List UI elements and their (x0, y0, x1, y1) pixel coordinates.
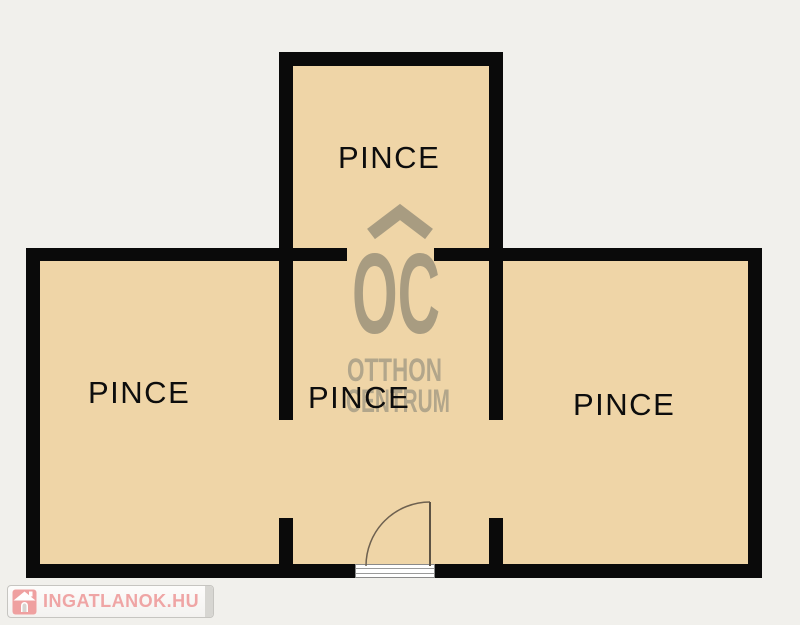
wall-mid-west-segment (26, 248, 347, 261)
wall-top-room-north (279, 52, 503, 66)
wall-outer-west (26, 248, 40, 578)
portal-logo: INGATLANOK.HU (7, 585, 214, 618)
portal-logo-text: INGATLANOK.HU (43, 591, 199, 612)
wall-interior-west-upper (279, 261, 293, 420)
portal-logo-edge-tab (205, 586, 213, 617)
room-label-right: PINCE (573, 389, 675, 420)
door-symbol (350, 495, 450, 580)
watermark-monogram: OC (352, 231, 440, 358)
wall-bottom-east-segment (435, 564, 762, 578)
wall-interior-west-stub (279, 518, 293, 564)
wall-mid-east-segment (434, 248, 762, 261)
wall-interior-east-upper (489, 261, 503, 420)
room-label-top: PINCE (338, 142, 440, 173)
wall-bottom-west-segment (26, 564, 355, 578)
wall-top-room-west (279, 52, 293, 261)
house-icon (12, 589, 37, 615)
floor-plan-canvas: OC OTTHON CENTRUM PINCE PINCE PINCE PINC… (0, 0, 800, 625)
wall-top-room-east (489, 52, 503, 261)
room-label-middle: PINCE (308, 382, 410, 413)
door-swing-arc (366, 502, 430, 566)
wall-interior-east-stub (489, 518, 503, 564)
wall-outer-east (748, 248, 762, 578)
room-label-left: PINCE (88, 377, 190, 408)
